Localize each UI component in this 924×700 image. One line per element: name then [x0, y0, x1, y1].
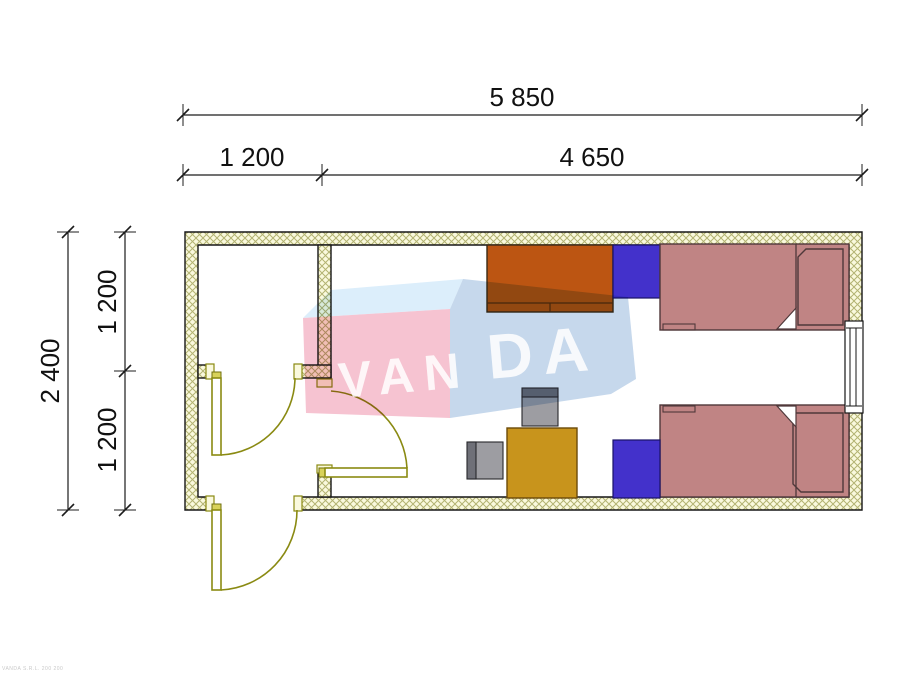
bedside-cabinet-1	[613, 245, 660, 298]
entrance-door-swing	[221, 510, 297, 590]
desk	[507, 428, 577, 498]
pillow	[798, 249, 843, 325]
bedside-cabinet-2	[613, 440, 660, 498]
door-jamb	[294, 364, 302, 379]
dim-label-total-width: 5 850	[489, 82, 554, 112]
floor-plan-drawing: VAN DA 5 850 1 200 4 650	[0, 0, 924, 700]
watermark-text-left: VAN	[336, 342, 472, 409]
dim-label-total-depth: 2 400	[35, 338, 65, 403]
dim-split-widths: 1 200 4 650	[177, 142, 868, 186]
fine-print-credit: VANDA S.R.L. 200 200	[2, 666, 63, 672]
entrance-opening	[212, 495, 299, 512]
bed-2	[660, 405, 849, 497]
entrance-door-leaf	[212, 510, 221, 590]
dim-label-upper-depth: 1 200	[92, 269, 122, 334]
dim-split-depths: 1 200 1 200	[92, 226, 136, 516]
bed-1	[660, 244, 849, 330]
door-jamb	[294, 496, 302, 511]
watermark-text-right: DA	[484, 313, 601, 392]
pillow	[793, 413, 843, 492]
door-hinge	[319, 468, 325, 477]
dim-total-depth: 2 400	[35, 226, 79, 516]
dim-label-left-width: 1 200	[219, 142, 284, 172]
main-room-door-leaf	[325, 468, 407, 477]
dim-label-lower-depth: 1 200	[92, 407, 122, 472]
dim-total-width: 5 850	[177, 82, 868, 126]
door-hinge	[212, 372, 221, 378]
vestibule-door-leaf	[212, 378, 221, 455]
window	[845, 321, 863, 413]
vestibule-door-swing	[221, 378, 295, 455]
chair-2	[467, 442, 503, 479]
dim-label-right-width: 4 650	[559, 142, 624, 172]
door-hinge	[212, 504, 221, 510]
floor-plan-page: VAN DA 5 850 1 200 4 650	[0, 0, 924, 700]
